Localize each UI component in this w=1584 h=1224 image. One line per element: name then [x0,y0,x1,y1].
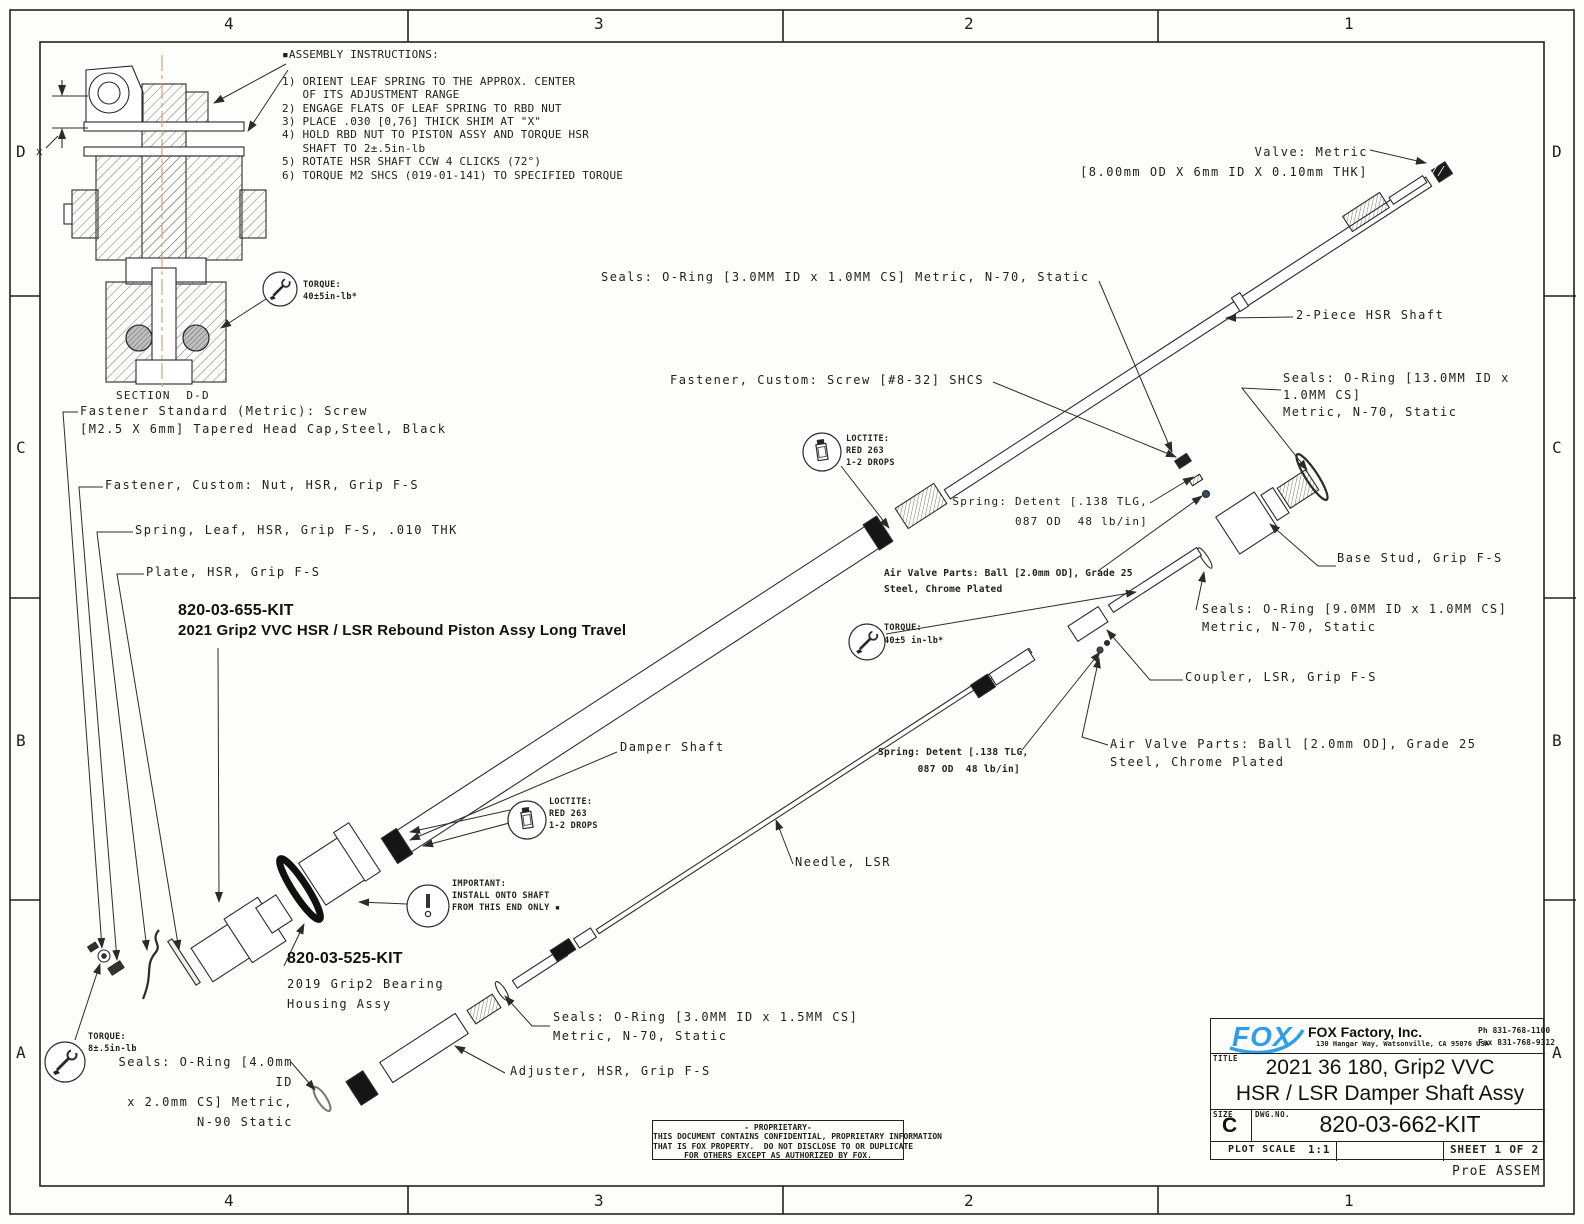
callout-spring-detent-1: Spring: Detent [.138 TLG, 087 OD 48 lb/i… [946,492,1148,532]
callout-coupler: Coupler, LSR, Grip F-S [1185,668,1377,686]
drawing-sheet: FOX 4 3 2 1 4 3 2 1 D C B A D C B A ▪ASS… [0,0,1584,1224]
zone-col-2-top: 2 [964,14,974,33]
assembly-instructions: ▪ASSEMBLY INSTRUCTIONS: 1) ORIENT LEAF S… [282,48,623,182]
company-phone: Ph 831-768-1100 [1478,1026,1550,1035]
callout-seals-oring-4x2: Seals: O-Ring [4.0mm ID x 2.0mm CS] Metr… [95,1052,293,1132]
zone-col-1-top: 1 [1344,14,1354,33]
dwg-number-label: DWG.NO. [1255,1110,1290,1119]
callout-torque-40-top: TORQUE: 40±5in-lb* [303,279,357,303]
plot-scale-value: 1:1 [1308,1143,1330,1156]
callout-damper-shaft: Damper Shaft [620,738,725,756]
important-exclamation-icon [407,885,449,927]
sheet-number: SHEET 1 OF 2 [1450,1143,1539,1156]
callout-seals-oring-9x1: Seals: O-Ring [9.0MM ID x 1.0MM CS] Metr… [1202,600,1507,636]
drawing-title-line2: HSR / LSR Damper Shaft Assy [1230,1082,1530,1106]
title-block-divider [1336,1141,1337,1161]
plot-scale-label: PLOT SCALE [1228,1144,1296,1155]
zone-col-3-bottom: 3 [594,1191,604,1210]
callout-air-valve-2: Air Valve Parts: Ball [2.0mm OD], Grade … [1110,735,1476,771]
zone-row-b-right: B [1552,731,1562,750]
title-block-divider [1443,1141,1444,1161]
zone-row-d-left: D [16,142,26,161]
zone-col-4-top: 4 [224,14,234,33]
zone-col-2-bottom: 2 [964,1191,974,1210]
callout-air-valve-1: Air Valve Parts: Ball [2.0mm OD], Grade … [884,566,1133,598]
title-block-divider [1211,1141,1545,1142]
size-value: C [1222,1114,1237,1138]
callout-adjuster: Adjuster, HSR, Grip F-S [510,1062,711,1080]
torque-wrench-icon [849,624,885,660]
section-label: SECTION D-D [116,386,210,406]
callout-valve-metric: Valve: Metric [8.00mm OD X 6mm ID X 0.10… [1050,142,1368,182]
torque-wrench-icon [45,1042,85,1082]
zone-row-b-left: B [16,731,26,750]
callout-kit-525-number: 820-03-525-KIT [287,950,403,968]
callout-torque-40-mid: TORQUE: 40±5 in-lb* [884,622,944,648]
callout-base-stud: Base Stud, Grip F-S [1337,549,1503,567]
callout-loctite-2: LOCTITE: RED 263 1-2 DROPS [549,796,598,832]
footer-note: ProE ASSEM [1452,1164,1540,1179]
title-block-divider [1211,1053,1545,1054]
callout-plate-hsr: Plate, HSR, Grip F-S [146,563,321,581]
callout-kit-655-desc: 2021 Grip2 VVC HSR / LSR Rebound Piston … [178,622,626,639]
callout-needle-lsr: Needle, LSR [795,853,891,871]
zone-row-d-right: D [1552,142,1562,161]
callout-fastener-nut: Fastener, Custom: Nut, HSR, Grip F-S [105,476,419,494]
loctite-bottle-icon [508,801,546,839]
dwg-number-value: 820-03-662-KIT [1295,1111,1505,1138]
section-dd-view [46,55,266,392]
callout-seals-oring-3x1: Seals: O-Ring [3.0MM ID x 1.0MM CS] Metr… [601,268,1090,286]
callout-important: IMPORTANT: INSTALL ONTO SHAFT FROM THIS … [452,878,560,914]
dimension-x-label: x [36,142,44,162]
callout-spring-leaf: Spring, Leaf, HSR, Grip F-S, .010 THK [135,521,458,539]
torque-wrench-icon [263,272,297,306]
drawing-title-line1: 2021 36 180, Grip2 VVC [1230,1056,1530,1080]
zone-col-1-bottom: 1 [1344,1191,1354,1210]
callout-loctite-1: LOCTITE: RED 263 1-2 DROPS [846,433,895,469]
loctite-bottle-icon [803,433,841,471]
zone-row-c-left: C [16,438,26,457]
callout-2piece-hsr-shaft: 2-Piece HSR Shaft [1296,306,1444,324]
zone-col-3-top: 3 [594,14,604,33]
zone-row-a-left: A [16,1043,26,1062]
zone-col-4-bottom: 4 [224,1191,234,1210]
callout-spring-detent-2: Spring: Detent [.138 TLG, 087 OD 48 lb/i… [878,744,1020,778]
zone-row-c-right: C [1552,438,1562,457]
title-block-divider [1251,1109,1252,1141]
callout-seals-oring-13x1: Seals: O-Ring [13.0MM ID x 1.0MM CS] Met… [1283,370,1510,421]
company-name: FOX Factory, Inc. [1308,1024,1422,1040]
proprietary-note: - PROPRIETARY- THIS DOCUMENT CONTAINS CO… [652,1120,904,1160]
callout-kit-525-desc: 2019 Grip2 Bearing Housing Assy [287,974,444,1014]
callout-seals-oring-3x15: Seals: O-Ring [3.0MM ID x 1.5MM CS] Metr… [553,1008,858,1046]
callout-fastener-standard: Fastener Standard (Metric): Screw [M2.5 … [80,402,446,438]
company-address: 130 Hangar Way, Watsonville, CA 95076 US… [1316,1040,1489,1048]
callout-fastener-screw: Fastener, Custom: Screw [#8-32] SHCS [670,371,984,389]
company-fax: Fax 831-768-9312 [1478,1038,1555,1047]
callout-kit-655-number: 820-03-655-KIT [178,602,294,620]
